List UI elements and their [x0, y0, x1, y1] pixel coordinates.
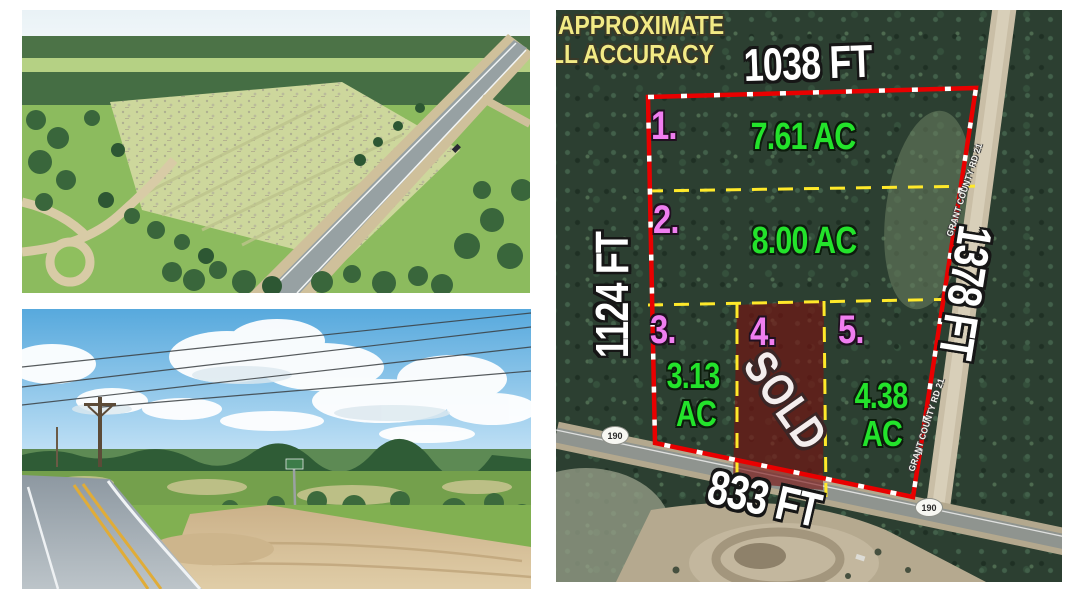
highway-shield-right: 190 [915, 498, 943, 517]
lot-3-number: 3. [650, 310, 676, 350]
lot-3-acreage-value: 3.13 [653, 358, 733, 394]
listing-collage: { "map": { "disclaimer": { "line1": "APP… [0, 0, 1066, 600]
lot-1-acreage: 7.61 AC [747, 118, 859, 156]
aerial-photo [22, 10, 530, 293]
highway-shield-right-number: 190 [921, 503, 936, 513]
disclaimer-line-2: LL ACCURACY [556, 41, 714, 67]
aerial-photo-art [22, 10, 530, 293]
highway-shield-left: 190 [601, 426, 629, 445]
disclaimer-line-1: APPROXIMATE [558, 12, 724, 38]
ground-photo-art [22, 309, 531, 589]
parcel-map: APPROXIMATE LL ACCURACY 1038 FT 1124 FT … [556, 10, 1062, 582]
highway-shield-left-number: 190 [607, 431, 622, 441]
ground-photo [22, 309, 531, 589]
lot-2-number: 2. [653, 200, 679, 240]
lot-1-number: 1. [651, 106, 677, 146]
dimension-top-label: 1038 FT [743, 38, 869, 88]
cul-de-sac [50, 242, 90, 282]
lot-3-acreage-unit: AC [656, 396, 736, 432]
lot-2-acreage: 8.00 AC [748, 222, 860, 260]
lot-5-acreage-value: 4.38 [841, 378, 921, 414]
lot-5-acreage-unit: AC [842, 416, 922, 452]
dimension-left-label: 1124 FT [589, 217, 635, 373]
lot-5-number: 5. [838, 310, 864, 350]
